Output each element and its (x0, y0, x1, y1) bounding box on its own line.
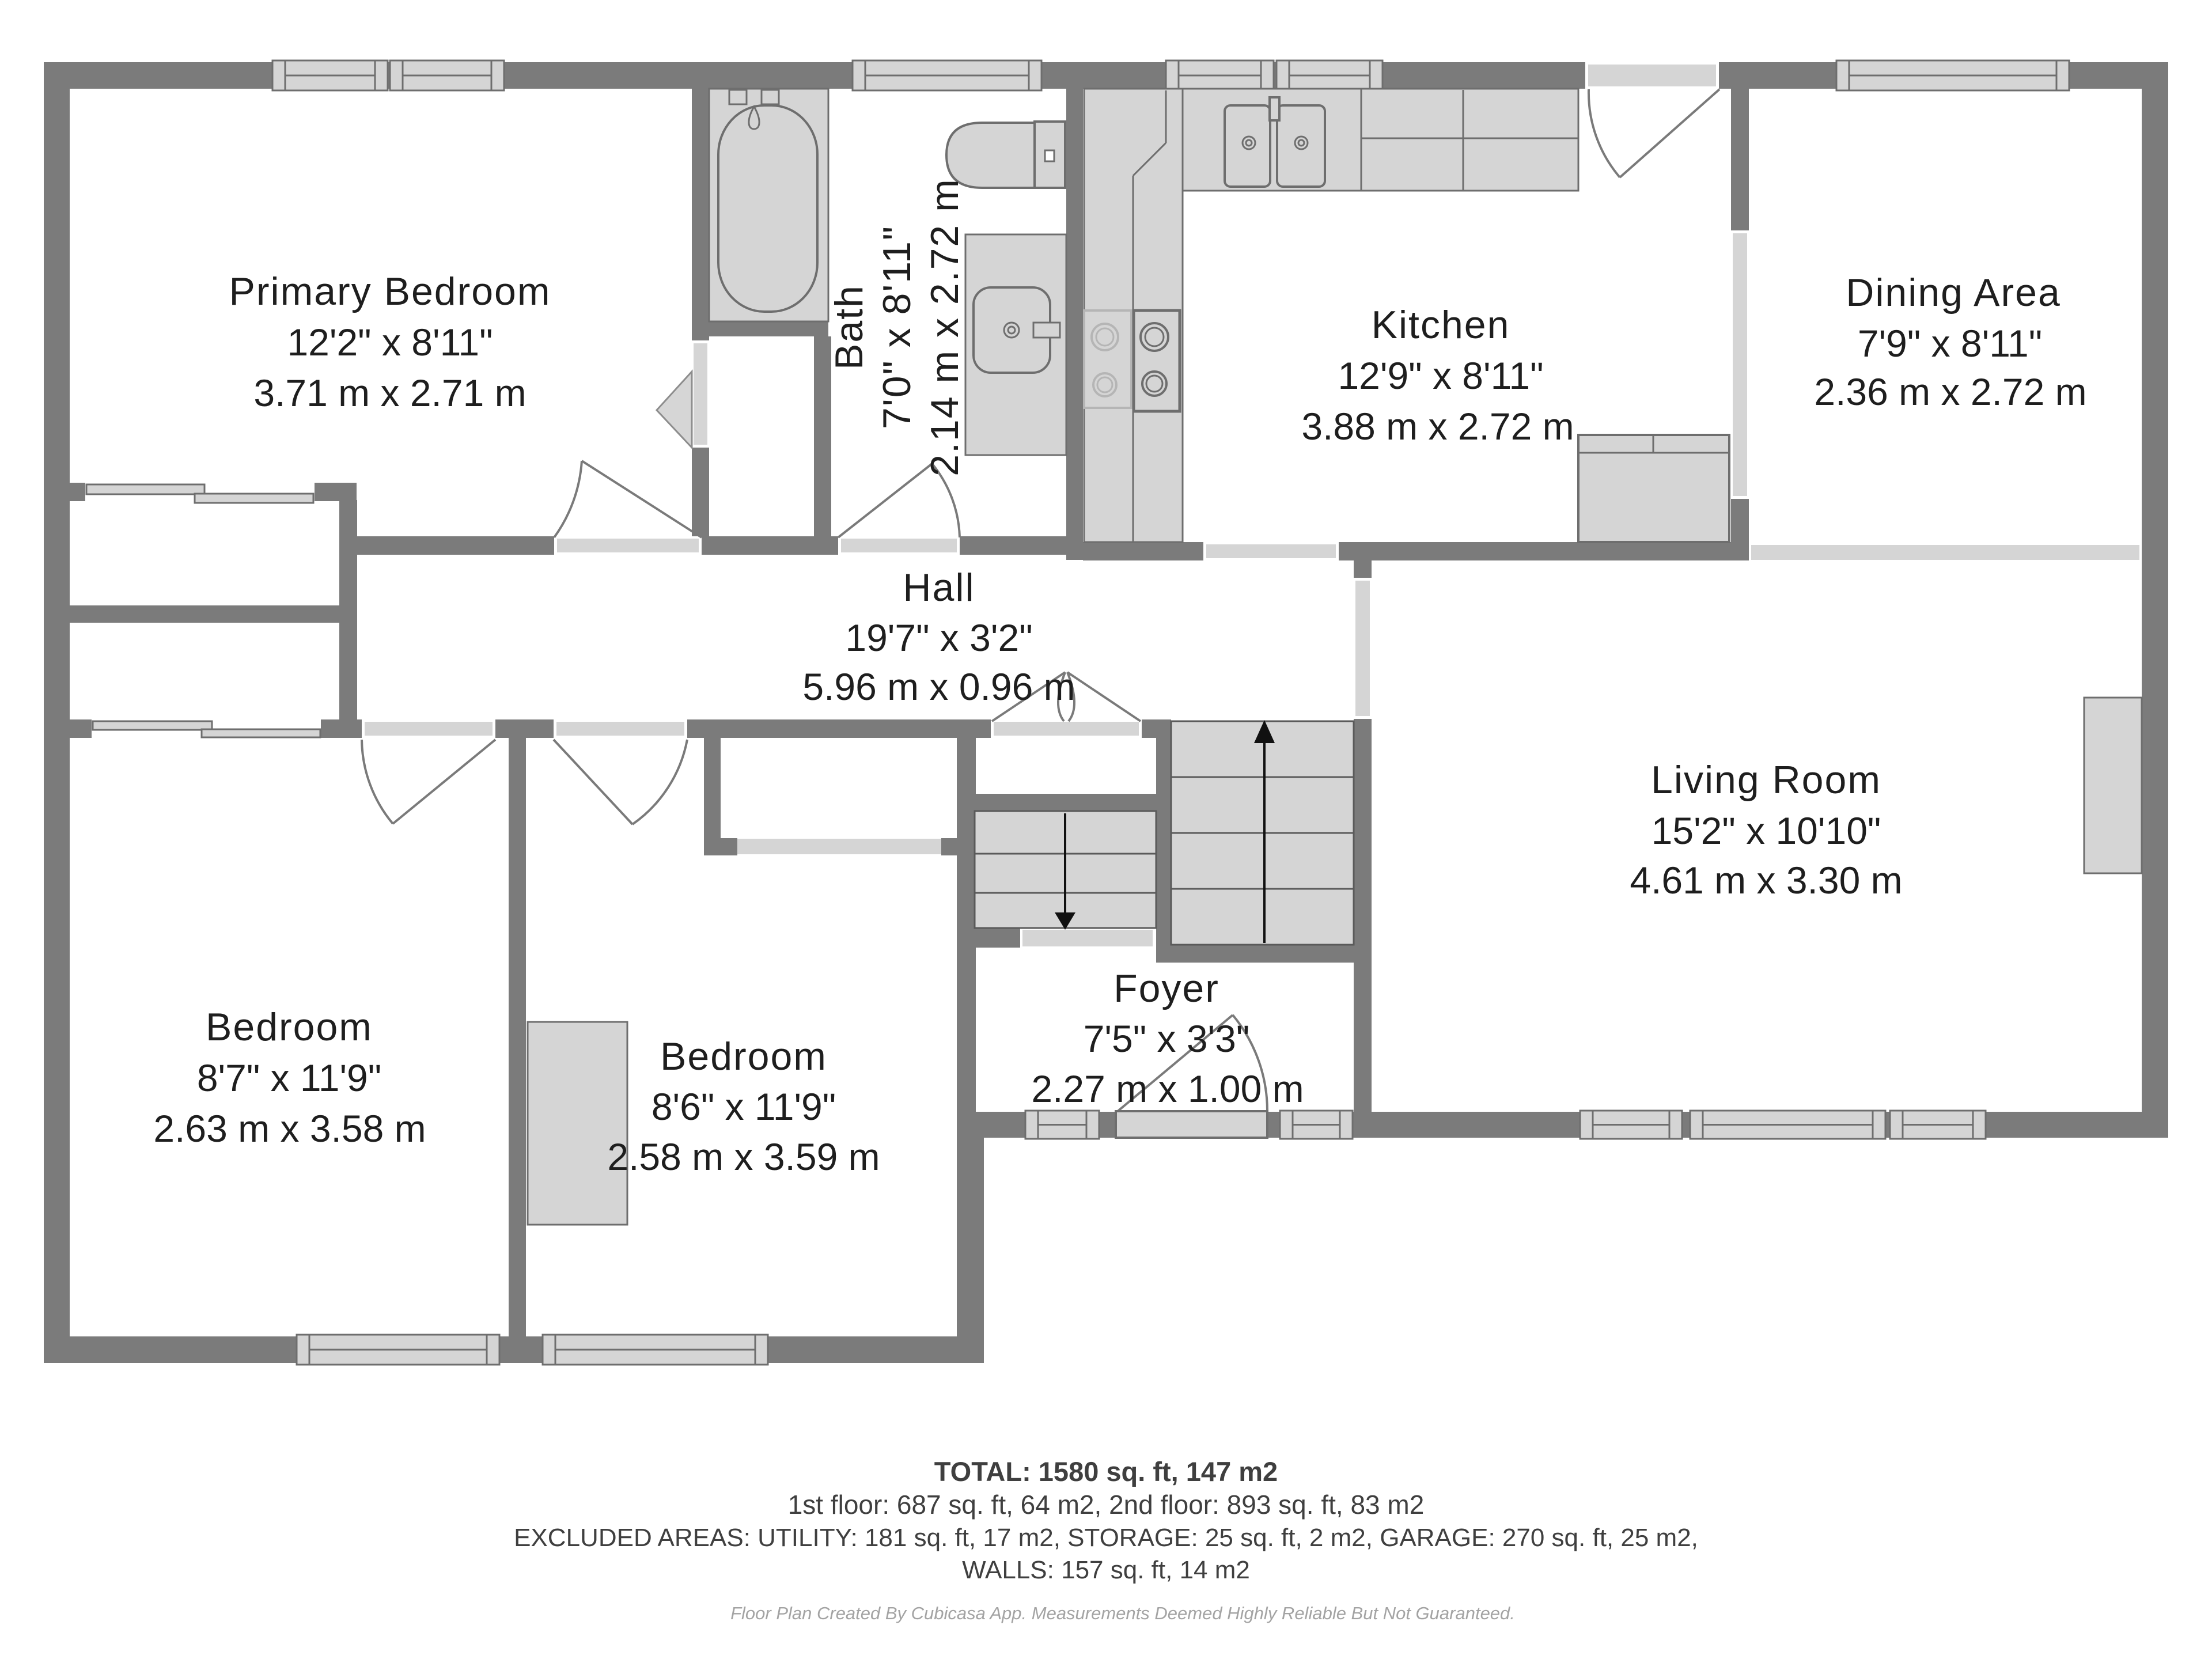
svg-text:Bedroom: Bedroom (660, 1035, 827, 1078)
svg-text:19'7" x 3'2": 19'7" x 3'2" (845, 616, 1032, 659)
svg-text:Bedroom: Bedroom (206, 1005, 373, 1049)
svg-text:2.27 m x 1.00 m: 2.27 m x 1.00 m (1031, 1067, 1304, 1110)
svg-text:3.71 m x 2.71 m: 3.71 m x 2.71 m (253, 372, 526, 414)
svg-text:2.36 m x 2.72 m: 2.36 m x 2.72 m (1814, 370, 2086, 413)
svg-text:8'7" x 11'9": 8'7" x 11'9" (197, 1056, 381, 1099)
svg-text:EXCLUDED AREAS: UTILITY: 181 s: EXCLUDED AREAS: UTILITY: 181 sq. ft, 17 … (514, 1524, 1698, 1552)
svg-text:WALLS: 157 sq. ft, 14 m2: WALLS: 157 sq. ft, 14 m2 (962, 1556, 1250, 1584)
svg-text:12'9" x 8'11": 12'9" x 8'11" (1338, 354, 1543, 397)
svg-text:1st floor: 687 sq. ft, 64 m2,: 1st floor: 687 sq. ft, 64 m2, 2nd floor:… (788, 1490, 1425, 1520)
svg-text:Living Room: Living Room (1651, 758, 1881, 802)
svg-text:TOTAL: 1580 sq. ft, 147 m2: TOTAL: 1580 sq. ft, 147 m2 (934, 1456, 1278, 1487)
svg-text:Bath: Bath (827, 285, 871, 370)
svg-text:12'2" x 8'11": 12'2" x 8'11" (287, 321, 493, 363)
svg-text:Foyer: Foyer (1113, 967, 1219, 1010)
svg-text:Kitchen: Kitchen (1372, 303, 1510, 347)
svg-text:15'2" x 10'10": 15'2" x 10'10" (1652, 809, 1881, 852)
svg-text:Hall: Hall (903, 566, 975, 609)
svg-text:Primary Bedroom: Primary Bedroom (229, 270, 551, 313)
svg-text:8'6" x 11'9": 8'6" x 11'9" (652, 1085, 836, 1128)
svg-text:3.88 m x 2.72 m: 3.88 m x 2.72 m (1301, 405, 1574, 448)
svg-text:2.14 m x 2.72 m: 2.14 m x 2.72 m (923, 178, 967, 476)
svg-text:7'5" x 3'3": 7'5" x 3'3" (1084, 1017, 1250, 1060)
svg-text:5.96 m x 0.96 m: 5.96 m x 0.96 m (802, 665, 1075, 708)
svg-text:4.61 m x 3.30 m: 4.61 m x 3.30 m (1630, 859, 1902, 902)
svg-text:Floor Plan Created By Cubicasa: Floor Plan Created By Cubicasa App. Meas… (730, 1603, 1515, 1623)
svg-text:Dining Area: Dining Area (1846, 271, 2061, 315)
svg-text:2.63 m x 3.58 m: 2.63 m x 3.58 m (153, 1107, 426, 1150)
svg-text:7'0" x 8'11": 7'0" x 8'11" (875, 225, 919, 429)
svg-text:7'9" x 8'11": 7'9" x 8'11" (1858, 322, 2042, 365)
svg-text:2.58 m x 3.59 m: 2.58 m x 3.59 m (607, 1135, 880, 1178)
